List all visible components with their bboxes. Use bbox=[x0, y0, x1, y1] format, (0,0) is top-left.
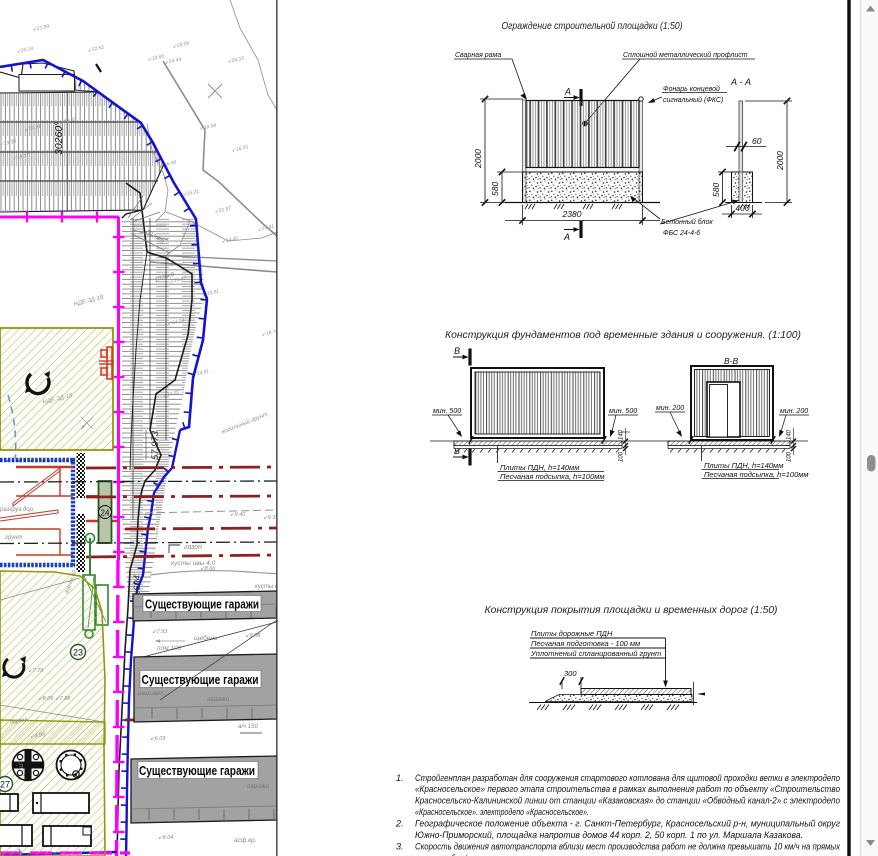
svg-text:разр.вет.: разр.вет. bbox=[137, 691, 165, 697]
svg-text:140: 140 bbox=[787, 429, 793, 440]
svg-text:Фонарь концевой: Фонарь концевой bbox=[663, 85, 720, 93]
svg-text:А: А bbox=[564, 87, 571, 97]
svg-text:Существующие гаражи: Существующие гаражи bbox=[142, 672, 259, 687]
svg-text:100: 100 bbox=[787, 451, 793, 462]
svg-text:↙6.03: ↙6.03 bbox=[150, 736, 166, 742]
svg-text:В: В bbox=[454, 346, 460, 356]
svg-text:гаражи: гаражи bbox=[247, 783, 269, 790]
svg-text:Бетонный блок: Бетонный блок bbox=[661, 218, 713, 226]
svg-text:Существующие гаражи: Существующие гаражи bbox=[139, 763, 255, 778]
svg-text:мин. 500: мин. 500 bbox=[433, 408, 461, 415]
svg-text:сигнальный (ФКС): сигнальный (ФКС) bbox=[663, 96, 723, 104]
svg-text:580: 580 bbox=[711, 183, 721, 197]
svg-text:30260°: 30260° bbox=[53, 122, 65, 155]
svg-text:мин. 200: мин. 200 bbox=[656, 405, 684, 412]
svg-text:Конструкция фундаментов под вр: Конструкция фундаментов под временные зд… bbox=[445, 329, 801, 341]
svg-text:24: 24 bbox=[101, 509, 110, 518]
svg-text:а/ч 150: а/ч 150 bbox=[238, 724, 258, 730]
svg-text:Песчаная подсыпка, h=100мм: Песчаная подсыпка, h=100мм bbox=[500, 472, 605, 481]
svg-text:↙9.40: ↙9.40 bbox=[230, 512, 246, 518]
svg-text:гаражи: гаражи bbox=[207, 696, 229, 703]
svg-text:плм.100: плм.100 bbox=[157, 645, 182, 652]
svg-text:Плиты ПДН, h=140мм: Плиты ПДН, h=140мм bbox=[500, 463, 579, 472]
svg-text:газон: газон bbox=[184, 544, 202, 551]
svg-text:Ограждение строительной площад: Ограждение строительной площадки (1:50) bbox=[502, 20, 683, 32]
svg-text:Существующие гаражи: Существующие гаражи bbox=[145, 598, 259, 612]
svg-text:400: 400 bbox=[735, 203, 749, 213]
svg-text:В-В: В-В bbox=[724, 356, 739, 366]
svg-text:«Красносельское» первого этапа: «Красносельское» первого этапа строитель… bbox=[415, 784, 840, 794]
svg-text:кусты ивы 4.0: кусты ивы 4.0 bbox=[171, 560, 216, 567]
svg-text:Песчаная подготовка - 100 мм: Песчаная подготовка - 100 мм bbox=[531, 639, 640, 648]
svg-text:Плиты ПДН, h=140мм: Плиты ПДН, h=140мм bbox=[704, 461, 783, 470]
svg-text:60: 60 bbox=[752, 136, 762, 146]
svg-text:Уплотненый спланированный грун: Уплотненый спланированный грунт bbox=[530, 649, 661, 658]
svg-text:↙9.31: ↙9.31 bbox=[263, 515, 278, 521]
svg-text:↙7.93: ↙7.93 bbox=[152, 629, 168, 635]
svg-text:Сплошной металлический профлис: Сплошной металлический профлист bbox=[623, 51, 748, 59]
svg-text:Сварная рама: Сварная рама bbox=[455, 52, 501, 59]
svg-text:↙8.04: ↙8.04 bbox=[158, 835, 173, 841]
svg-text:мин. 500: мин. 500 bbox=[609, 408, 637, 415]
svg-text:↙7.88: ↙7.88 bbox=[55, 696, 71, 702]
svg-text:разгруз.дор.: разгруз.дор. bbox=[0, 507, 35, 513]
svg-text:2380: 2380 bbox=[562, 209, 582, 219]
svg-text:Географическое положение объек: Географическое положение объекта - г. Са… bbox=[415, 819, 841, 829]
svg-text:мин. 200: мин. 200 bbox=[780, 408, 808, 415]
svg-text:140: 140 bbox=[619, 429, 625, 440]
svg-text:2000: 2000 bbox=[775, 151, 785, 171]
svg-text:Скорость движения автотранспор: Скорость движения автотранспорта вблизи … bbox=[415, 842, 840, 852]
svg-text:300: 300 bbox=[564, 669, 577, 678]
svg-text:↙7.78: ↙7.78 bbox=[28, 668, 44, 674]
svg-text:2000: 2000 bbox=[473, 149, 483, 169]
svg-text:грунт: грунт bbox=[5, 535, 22, 541]
svg-text:580: 580 bbox=[490, 182, 500, 196]
svg-text:Южно-Приморский, площадка напр: Южно-Приморский, площадка напротив домов… bbox=[415, 830, 803, 840]
svg-text:27: 27 bbox=[0, 780, 10, 790]
svg-text:3.: 3. bbox=[396, 842, 404, 852]
svg-text:А: А bbox=[563, 232, 570, 242]
svg-text:1.: 1. bbox=[396, 773, 404, 783]
svg-text:Песчаная подсыпка, h=100мм: Песчаная подсыпка, h=100мм bbox=[704, 470, 809, 479]
svg-text:57.973: 57.973 bbox=[150, 430, 161, 460]
svg-text:асф.кр.: асф.кр. bbox=[234, 837, 257, 844]
svg-text:Стройгенплан разработан для со: Стройгенплан разработан для сооружения с… bbox=[415, 773, 840, 783]
svg-text:А - А: А - А bbox=[730, 77, 751, 87]
svg-text:Красносельско-Калининской лини: Красносельско-Калининской линии от станц… bbox=[415, 796, 840, 806]
svg-text:↙8.09: ↙8.09 bbox=[38, 696, 53, 702]
svg-text:«Красносельское». электродепо: «Красносельское». электродепо «Красносел… bbox=[415, 807, 589, 817]
svg-text:Плиты дорожные ПДН: Плиты дорожные ПДН bbox=[531, 629, 613, 638]
svg-text:2.: 2. bbox=[395, 819, 404, 829]
svg-text:Конструкция покрытия площадки: Конструкция покрытия площадки и временны… bbox=[485, 604, 778, 616]
svg-text:ФБС 24-4-6: ФБС 24-4-6 bbox=[663, 230, 700, 237]
svg-text:100: 100 bbox=[619, 451, 625, 462]
svg-text:23: 23 bbox=[73, 648, 83, 658]
